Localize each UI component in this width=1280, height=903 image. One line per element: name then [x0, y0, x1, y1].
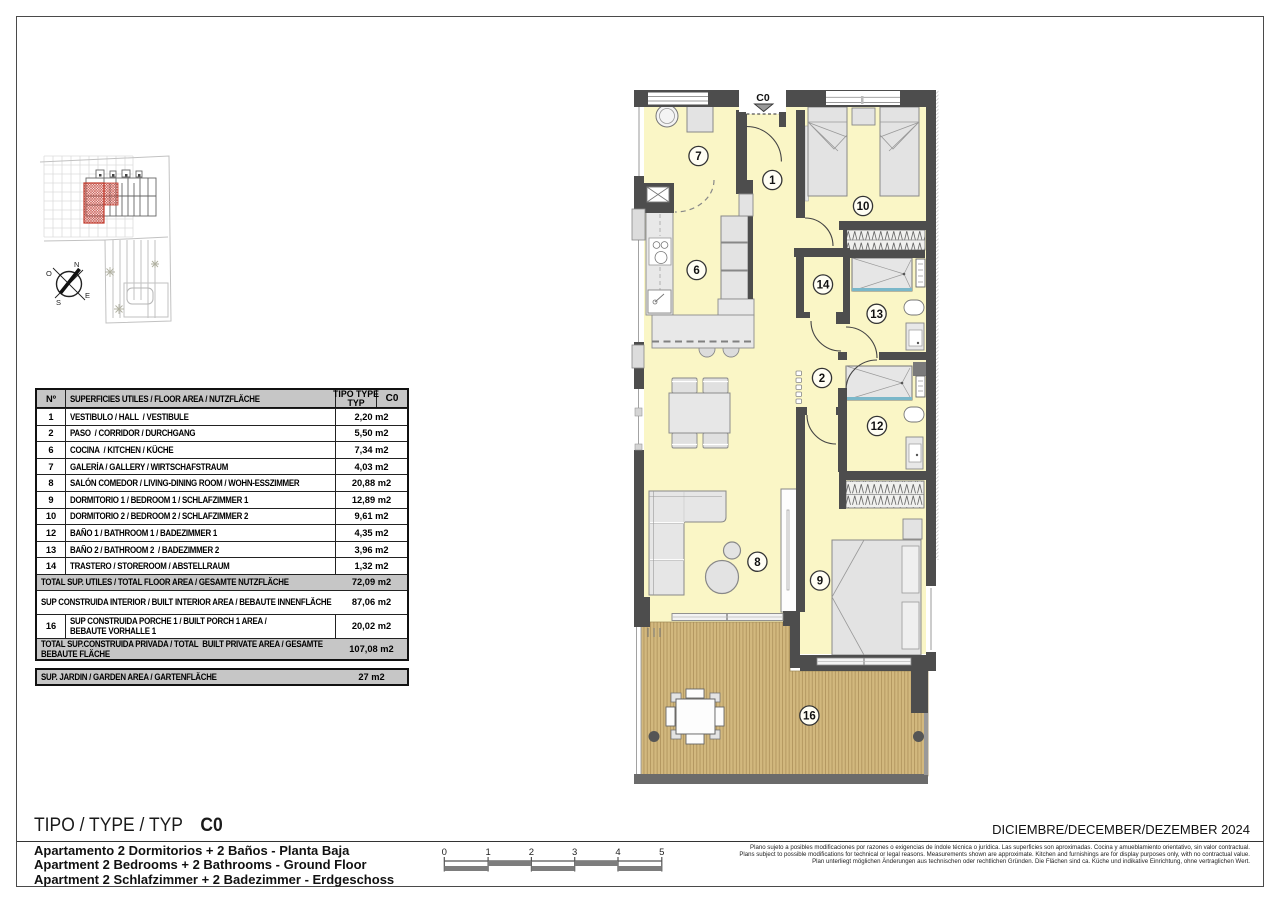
svg-text:10: 10	[857, 201, 870, 213]
svg-text:O: O	[46, 269, 52, 278]
svg-text:E: E	[85, 291, 90, 300]
svg-text:5: 5	[659, 847, 664, 858]
svg-text:3: 3	[572, 847, 577, 858]
svg-text:1: 1	[769, 175, 776, 187]
svg-text:8: 8	[754, 557, 761, 569]
svg-text:12: 12	[871, 421, 884, 433]
svg-text:1: 1	[485, 847, 490, 858]
svg-text:16: 16	[803, 711, 816, 723]
svg-text:N: N	[74, 260, 79, 269]
svg-text:2: 2	[529, 847, 534, 858]
svg-text:0: 0	[442, 847, 447, 858]
svg-text:7: 7	[695, 151, 701, 163]
svg-text:4: 4	[615, 847, 620, 858]
svg-text:S: S	[56, 298, 61, 307]
svg-text:14: 14	[817, 280, 830, 292]
svg-text:6: 6	[693, 265, 699, 277]
svg-text:C0: C0	[756, 92, 770, 104]
svg-text:9: 9	[817, 576, 823, 588]
svg-text:2: 2	[819, 373, 825, 385]
svg-text:13: 13	[870, 309, 883, 321]
